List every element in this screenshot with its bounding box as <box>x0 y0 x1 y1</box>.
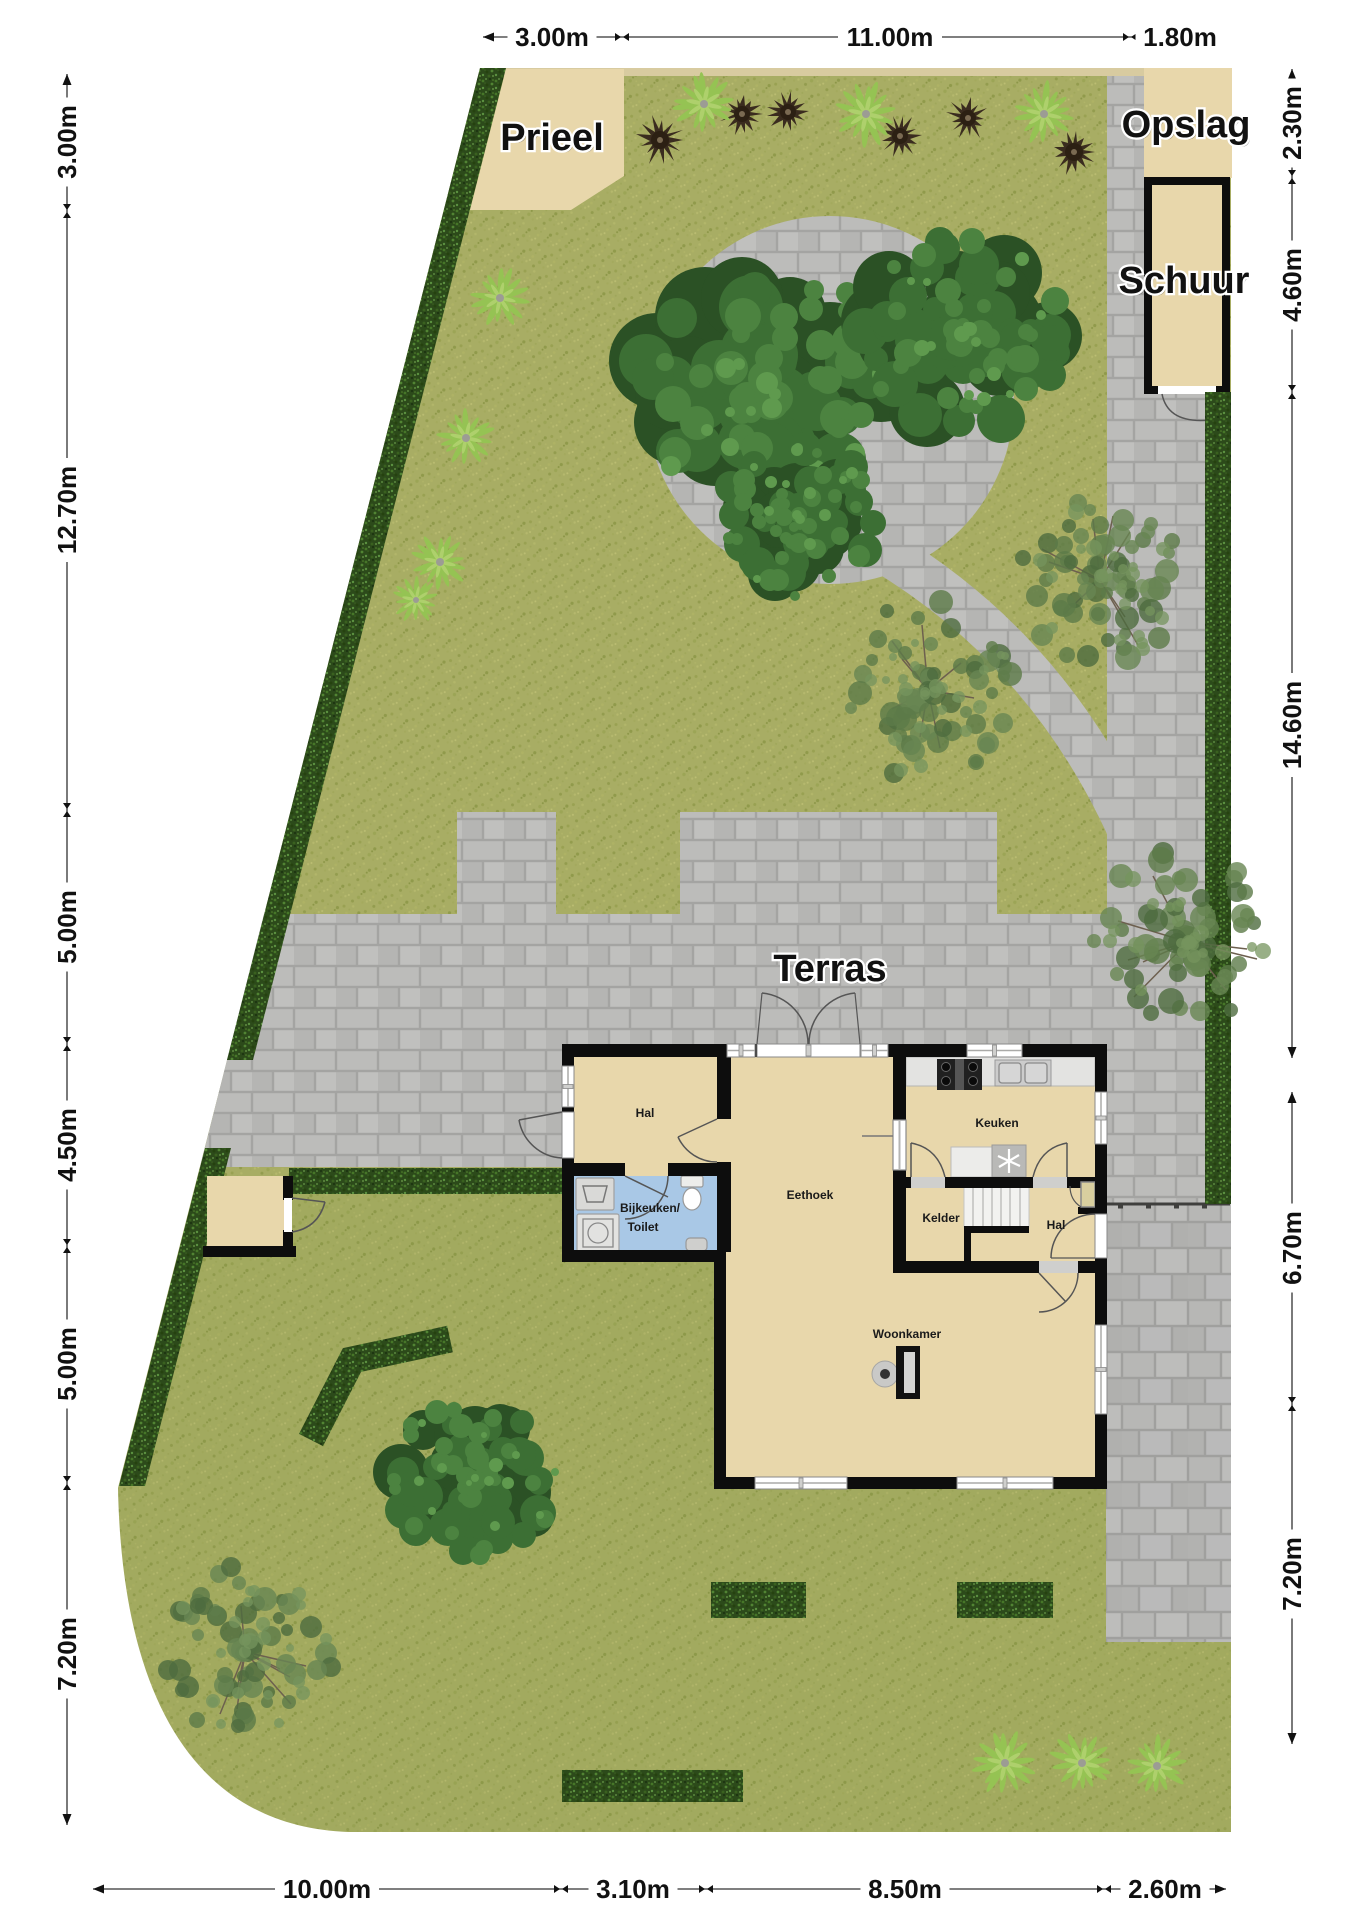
svg-text:1.80m: 1.80m <box>1143 22 1217 52</box>
svg-text:Terras: Terras <box>773 948 886 990</box>
svg-text:Eethoek: Eethoek <box>787 1188 834 1202</box>
svg-text:12.70m: 12.70m <box>52 466 82 554</box>
svg-text:Prieel: Prieel <box>500 117 604 159</box>
svg-text:7.20m: 7.20m <box>52 1617 82 1691</box>
svg-text:5.00m: 5.00m <box>52 890 82 964</box>
svg-text:2.30m: 2.30m <box>1277 86 1307 160</box>
svg-text:Woonkamer: Woonkamer <box>873 1327 942 1341</box>
svg-text:Keuken: Keuken <box>975 1116 1018 1130</box>
svg-text:Kelder: Kelder <box>922 1211 960 1225</box>
svg-text:10.00m: 10.00m <box>283 1874 371 1904</box>
svg-text:Schuur: Schuur <box>1119 260 1250 302</box>
svg-text:4.60m: 4.60m <box>1277 248 1307 322</box>
svg-text:14.60m: 14.60m <box>1277 681 1307 769</box>
svg-text:8.50m: 8.50m <box>868 1874 942 1904</box>
svg-text:5.00m: 5.00m <box>52 1327 82 1401</box>
svg-text:2.60m: 2.60m <box>1128 1874 1202 1904</box>
svg-text:Hal: Hal <box>1047 1218 1066 1232</box>
svg-text:Hal: Hal <box>636 1106 655 1120</box>
svg-text:Toilet: Toilet <box>627 1220 658 1234</box>
svg-text:3.00m: 3.00m <box>52 105 82 179</box>
svg-text:11.00m: 11.00m <box>847 22 934 52</box>
svg-text:4.50m: 4.50m <box>52 1108 82 1182</box>
svg-text:6.70m: 6.70m <box>1277 1211 1307 1285</box>
svg-text:Opslag: Opslag <box>1122 104 1251 146</box>
svg-text:7.20m: 7.20m <box>1277 1537 1307 1611</box>
svg-text:3.00m: 3.00m <box>515 22 589 52</box>
svg-text:3.10m: 3.10m <box>596 1874 670 1904</box>
svg-text:Bijkeuken/: Bijkeuken/ <box>620 1201 681 1215</box>
